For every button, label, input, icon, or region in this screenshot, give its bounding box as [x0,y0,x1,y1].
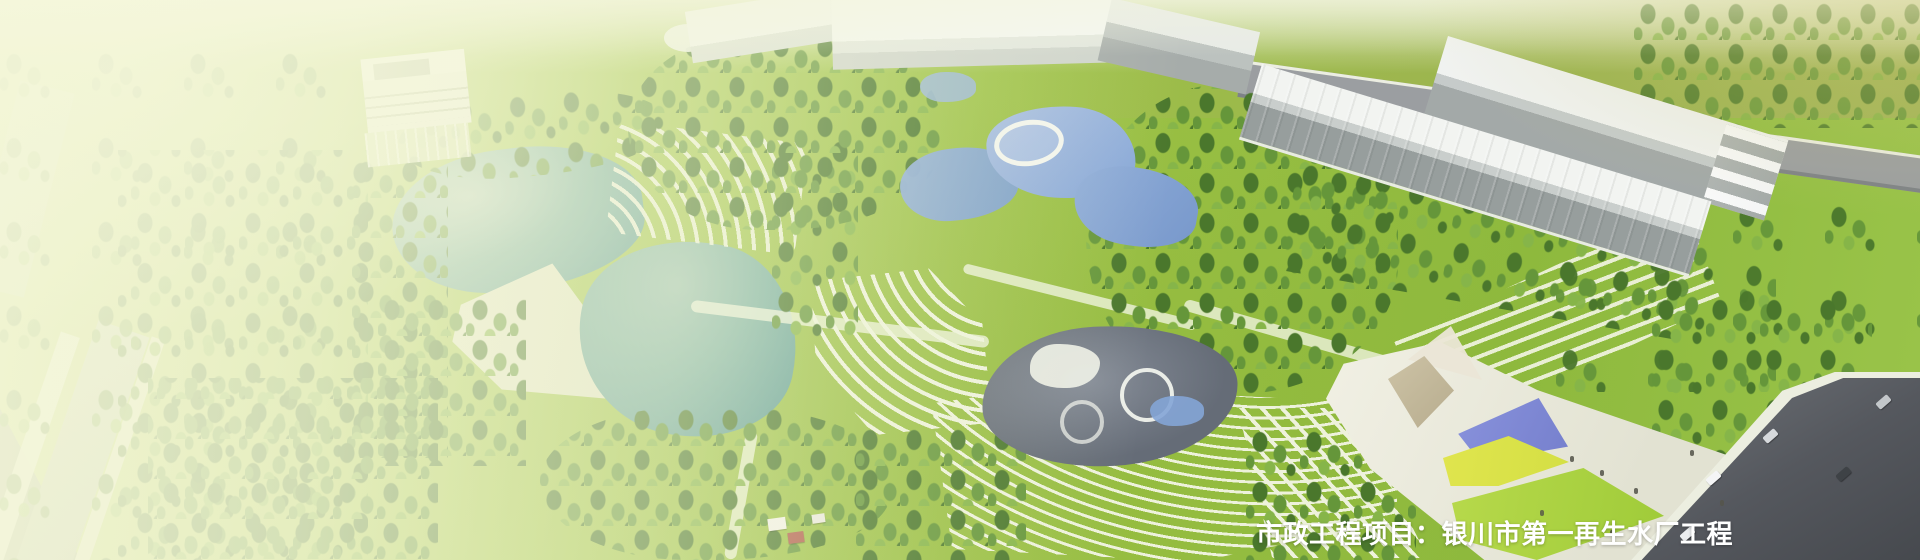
forest-below-lake [540,406,890,560]
office-floor-bands [364,87,471,128]
project-caption: 市政工程项目：银川市第一再生水厂工程 [1256,519,1733,549]
small-house-red-roof [787,531,804,544]
forest-south-center [856,426,1026,560]
banner-aerial-rendering: 市政工程项目：银川市第一再生水厂工程 [0,0,1920,560]
playground-pool [1150,396,1204,426]
small-house [767,517,786,531]
playground-path-ring [1060,400,1104,444]
office-roof-inset [373,58,430,80]
office-building [360,49,471,133]
forest-bottom-left [148,378,438,560]
small-pond [920,72,976,102]
pedestrian-dots [1600,470,1604,476]
warehouse-main [831,0,1119,70]
small-house [811,513,825,524]
